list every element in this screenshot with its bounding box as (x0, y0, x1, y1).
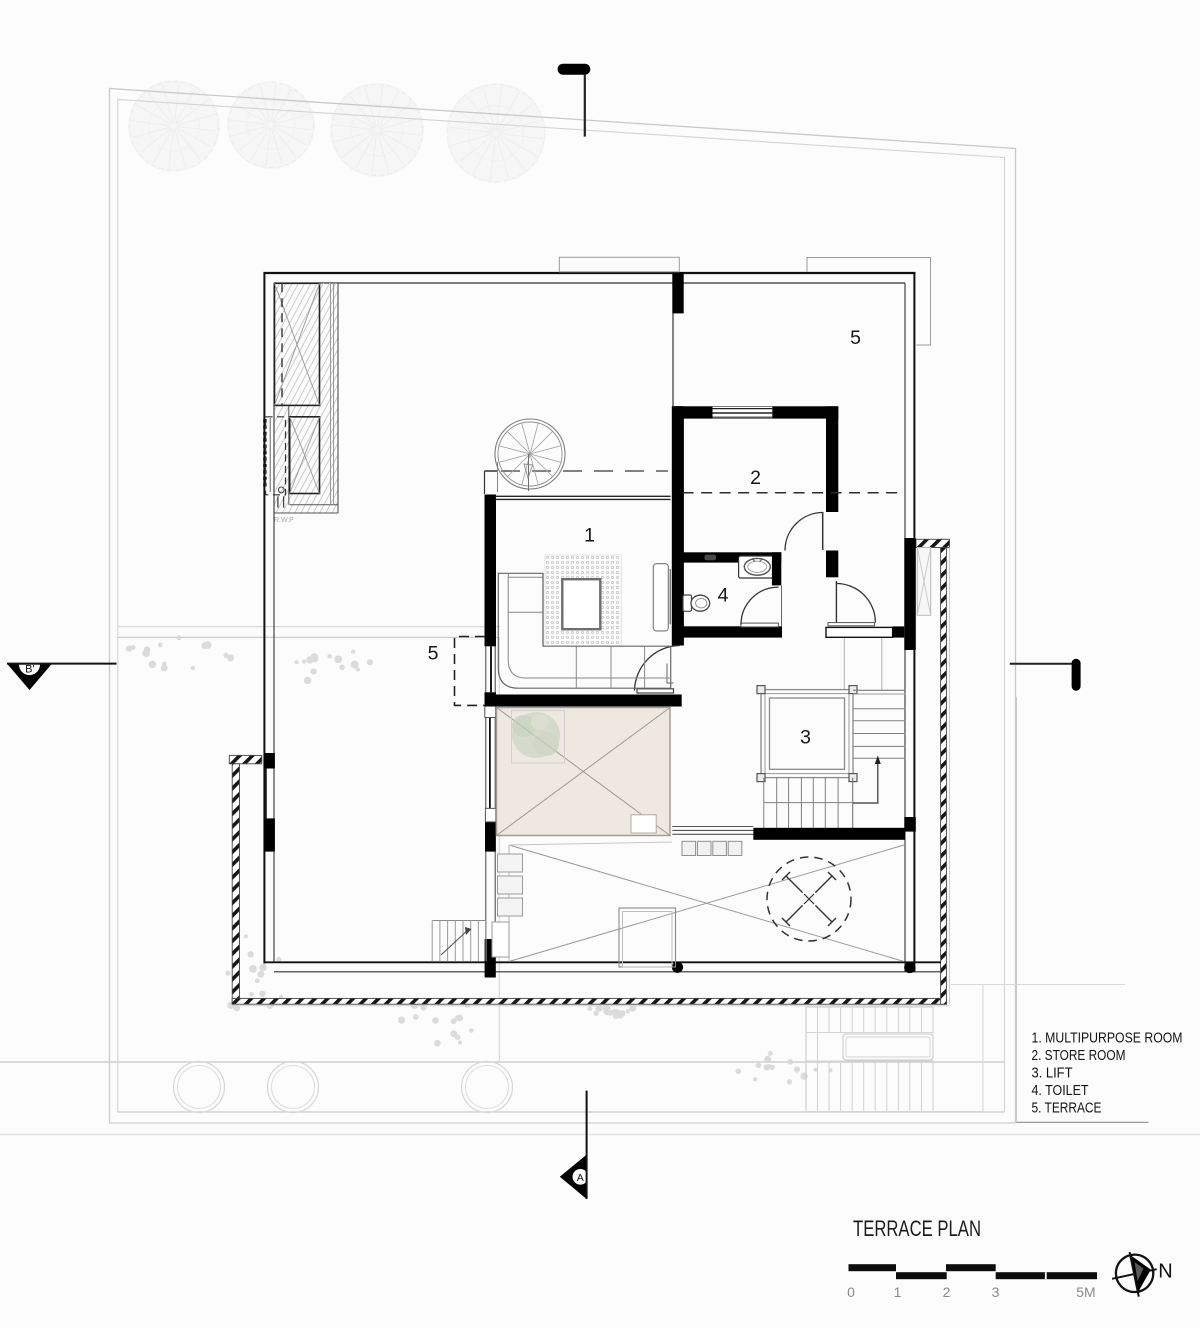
svg-text:3: 3 (800, 727, 811, 749)
svg-text:1. MULTIPURPOSE ROOM: 1. MULTIPURPOSE ROOM (1032, 1031, 1183, 1047)
svg-text:4. TOILET: 4. TOILET (1032, 1083, 1089, 1099)
svg-text:N: N (1158, 1261, 1172, 1283)
svg-text:5M: 5M (1076, 1284, 1095, 1300)
svg-text:3. LIFT: 3. LIFT (1032, 1065, 1073, 1081)
svg-text:0: 0 (847, 1284, 855, 1300)
svg-text:3: 3 (992, 1284, 1000, 1300)
svg-text:1: 1 (584, 525, 595, 547)
svg-text:5: 5 (850, 327, 861, 349)
svg-text:B': B' (25, 664, 34, 676)
svg-text:5: 5 (428, 643, 439, 665)
svg-text:5. TERRACE: 5. TERRACE (1032, 1100, 1102, 1116)
svg-text:4: 4 (718, 585, 729, 607)
svg-text:1: 1 (894, 1284, 902, 1300)
svg-text:2: 2 (750, 467, 761, 489)
svg-text:2. STORE ROOM: 2. STORE ROOM (1032, 1048, 1126, 1064)
svg-text:R.W.P: R.W.P (274, 517, 294, 524)
svg-text:A: A (577, 1172, 584, 1184)
svg-text:TERRACE PLAN: TERRACE PLAN (853, 1216, 981, 1241)
svg-text:2: 2 (943, 1284, 951, 1300)
